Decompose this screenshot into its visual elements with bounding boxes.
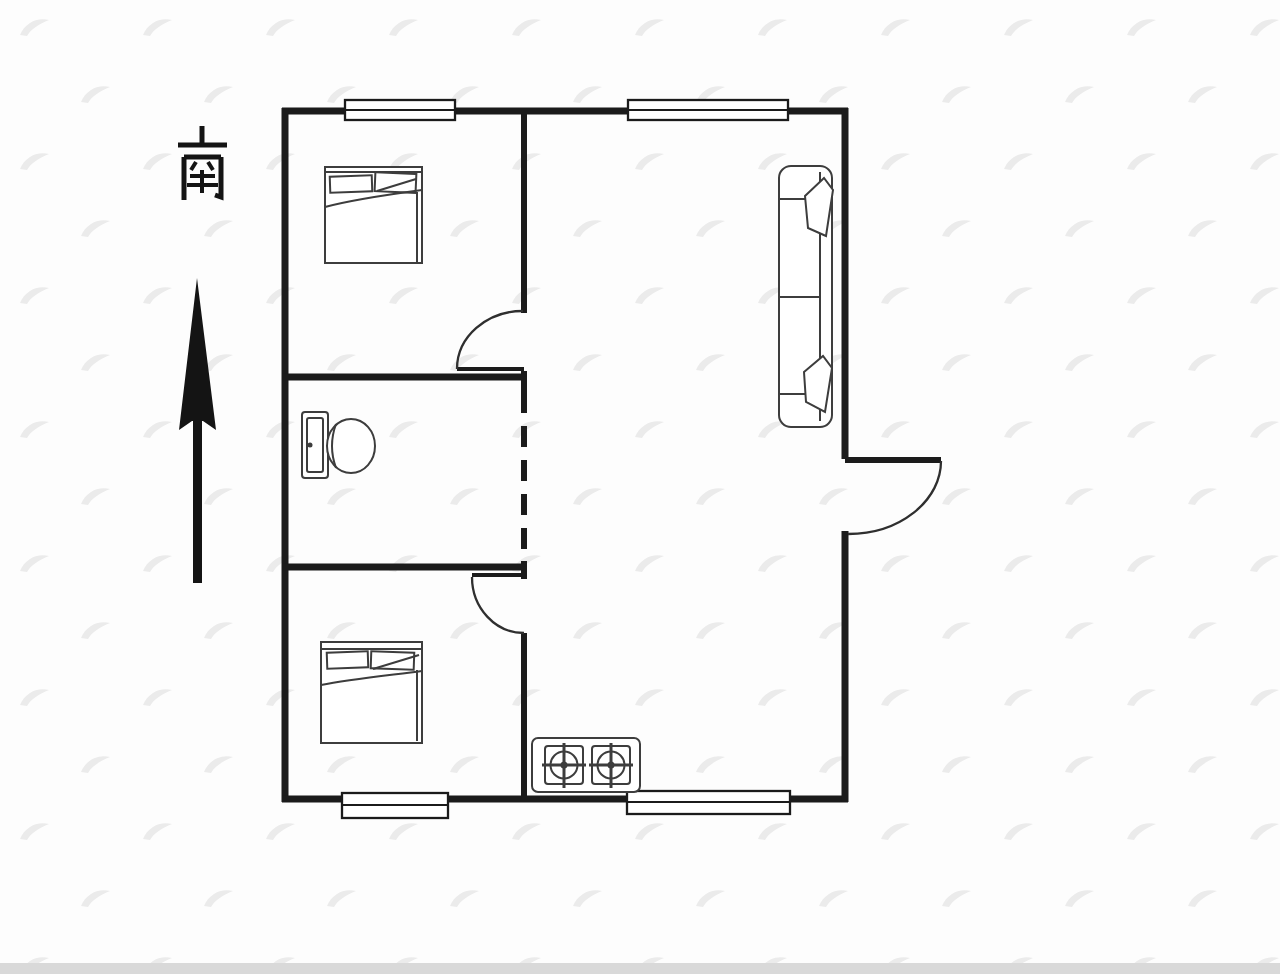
gas-stove-icon bbox=[532, 738, 640, 792]
floor-plan-image: 南 bbox=[0, 0, 1280, 974]
bedroom2-door bbox=[472, 575, 524, 633]
double-bed-icon-top bbox=[325, 167, 422, 263]
window-livingroom-top bbox=[628, 100, 788, 120]
compass-south-label: 南 bbox=[172, 118, 232, 198]
window-kitchen-bottom bbox=[627, 791, 790, 814]
double-bed-icon-bottom bbox=[321, 642, 422, 743]
sofa-icon bbox=[779, 166, 833, 427]
window-bedroom2 bbox=[342, 793, 448, 818]
bedroom1-door bbox=[457, 311, 524, 369]
north-arrow-icon bbox=[179, 278, 216, 583]
bottom-edge-strip bbox=[0, 963, 1280, 974]
entrance-door bbox=[845, 460, 941, 534]
toilet-icon bbox=[302, 412, 375, 478]
window-bedroom1 bbox=[345, 100, 455, 120]
